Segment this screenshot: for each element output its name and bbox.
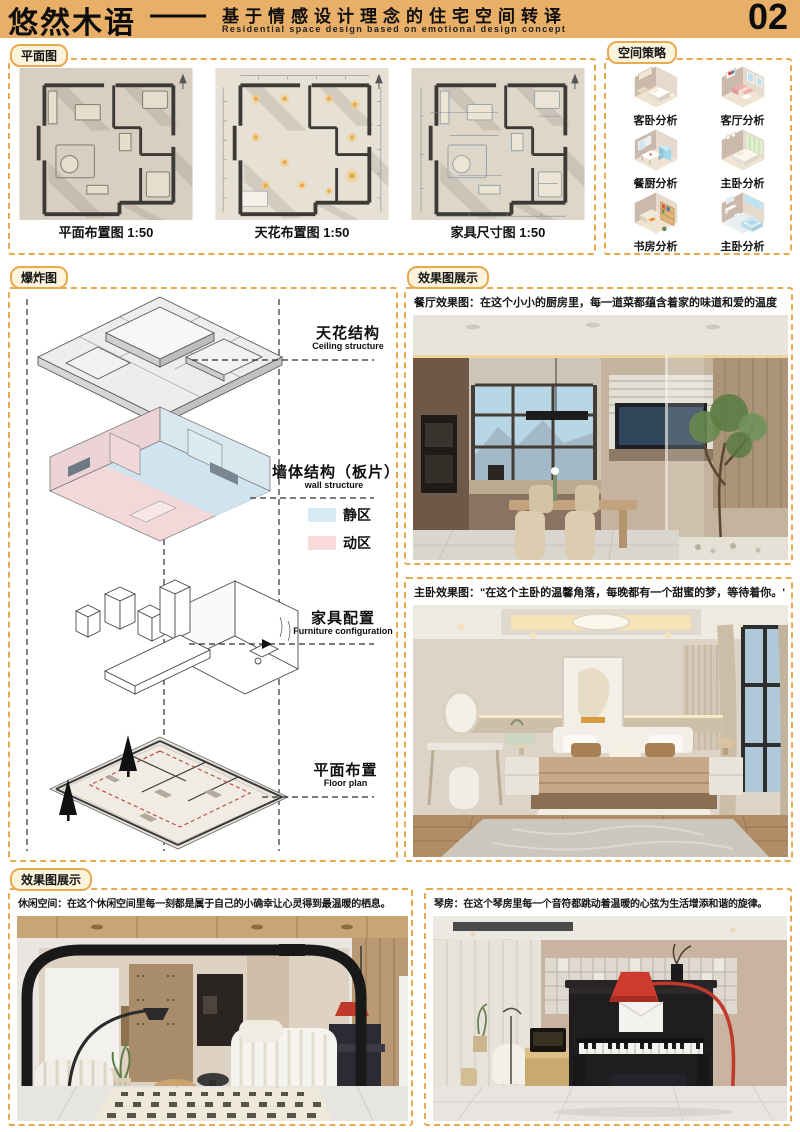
ceiling-layer bbox=[38, 297, 282, 425]
floor-plan-layer bbox=[50, 735, 288, 849]
master-bathroom-isometric-icon bbox=[715, 191, 771, 238]
guest-bedroom-isometric-icon bbox=[628, 65, 684, 112]
strategy-grid: 客卧分析 客厅分析 bbox=[612, 65, 786, 251]
legend-row-active: 动区 bbox=[308, 533, 371, 553]
page-title: 悠然木语 bbox=[8, 0, 136, 42]
strategy-item-label: 主卧分析 bbox=[721, 175, 765, 191]
strategy-item: 餐厨分析 bbox=[612, 128, 699, 191]
bedroom-render-caption: 主卧效果图："在这个主卧的温馨角落，每晚都有一个甜蜜的梦，等待着你。" bbox=[414, 584, 785, 600]
exploded-view-tag: 爆炸图 bbox=[10, 266, 68, 289]
quiet-zone-label: 静区 bbox=[343, 505, 371, 525]
presentation-board: 悠然木语 —— 基于情感设计理念的住宅空间转译 Residential spac… bbox=[0, 0, 800, 1132]
floor-plan-caption: 天花布置图 1:50 bbox=[213, 222, 391, 241]
page-subtitle-en: Residential space design based on emotio… bbox=[222, 24, 566, 34]
strategy-item-label: 主卧分析 bbox=[721, 238, 765, 254]
exploded-layer-label-floor-plan: 平面布置 Floor plan bbox=[298, 763, 393, 789]
floor-plan-caption: 平面布置图 1:50 bbox=[17, 222, 195, 241]
renders-bottom-tag: 效果图展示 bbox=[10, 868, 92, 891]
legend-row-quiet: 静区 bbox=[308, 505, 371, 525]
zone-legend: 静区 动区 bbox=[308, 505, 371, 561]
floor-plan-layout-image bbox=[17, 68, 195, 220]
strategy-item-label: 餐厨分析 bbox=[634, 175, 678, 191]
floor-plans-box: 平面布置图 1:50 bbox=[8, 58, 596, 255]
exploded-view-box: 天花结构 Ceiling structure 墙体结构（板片） wall str… bbox=[8, 287, 398, 862]
dining-kitchen-isometric-icon bbox=[628, 128, 684, 175]
master-bedroom-render-image bbox=[413, 605, 788, 857]
strategy-item-label: 书房分析 bbox=[634, 238, 678, 254]
space-strategy-tag: 空间策略 bbox=[607, 41, 677, 64]
piano-room-render-image bbox=[433, 916, 787, 1121]
strategy-item: 主卧分析 bbox=[699, 128, 786, 191]
exploded-layer-label-furniture: 家具配置 Furniture configuration bbox=[288, 611, 398, 637]
space-strategy-box: 客卧分析 客厅分析 bbox=[604, 58, 792, 255]
furniture-layer bbox=[76, 580, 298, 694]
strategy-item-label: 客卧分析 bbox=[634, 112, 678, 128]
wall-layer bbox=[50, 407, 270, 541]
piano-render-box: 琴房：在这个琴房里每一个音符都跳动着温暖的心弦为生活增添和谐的旋律。 bbox=[424, 888, 792, 1126]
master-bedroom-isometric-icon bbox=[715, 128, 771, 175]
strategy-item: 书房分析 bbox=[612, 191, 699, 254]
dining-render-caption: 餐厅效果图：在这个小小的厨房里，每一道菜都蕴含着家的味道和爱的温度 bbox=[414, 294, 785, 310]
leisure-render-caption: 休闲空间：在这个休闲空间里每一刻都是属于自己的小确幸让心灵得到最温暖的栖息。 bbox=[18, 895, 405, 910]
renders-tag: 效果图展示 bbox=[407, 266, 489, 289]
page-number: 02 bbox=[748, 0, 788, 38]
strategy-item: 客卧分析 bbox=[612, 65, 699, 128]
dining-room-render-image bbox=[413, 315, 788, 560]
floor-plans-tag: 平面图 bbox=[10, 44, 68, 67]
strategy-item: 主卧分析 bbox=[699, 191, 786, 254]
wall-art bbox=[563, 657, 623, 733]
leisure-render-box: 休闲空间：在这个休闲空间里每一刻都是属于自己的小确幸让心灵得到最温暖的栖息。 bbox=[8, 888, 413, 1126]
exploded-layer-label-ceiling: 天花结构 Ceiling structure bbox=[298, 326, 398, 352]
leisure-space-render-image bbox=[17, 916, 408, 1121]
active-zone-label: 动区 bbox=[343, 533, 371, 553]
study-room-isometric-icon bbox=[628, 191, 684, 238]
bed bbox=[531, 727, 717, 826]
piano-render-caption: 琴房：在这个琴房里每一个音符都跳动着温暖的心弦为生活增添和谐的旋律。 bbox=[434, 895, 784, 910]
active-zone-swatch bbox=[308, 536, 336, 550]
living-room-isometric-icon bbox=[715, 65, 771, 112]
header: 悠然木语 —— 基于情感设计理念的住宅空间转译 Residential spac… bbox=[0, 0, 800, 38]
floor-plan-caption: 家具尺寸图 1:50 bbox=[409, 222, 587, 241]
bedroom-render-box: 主卧效果图："在这个主卧的温馨角落，每晚都有一个甜蜜的梦，等待着你。" bbox=[404, 577, 793, 862]
quiet-zone-swatch bbox=[308, 508, 336, 522]
floor-plan-ceiling-image bbox=[213, 68, 391, 220]
strategy-item: 客厅分析 bbox=[699, 65, 786, 128]
floor-plan-dimensions-image bbox=[409, 68, 587, 220]
dining-render-box: 餐厅效果图：在这个小小的厨房里，每一道菜都蕴含着家的味道和爱的温度 bbox=[404, 287, 793, 565]
checkered-rug bbox=[93, 1088, 333, 1121]
exploded-layer-label-wall: 墙体结构（板片） wall structure bbox=[272, 465, 396, 491]
strategy-item-label: 客厅分析 bbox=[721, 112, 765, 128]
